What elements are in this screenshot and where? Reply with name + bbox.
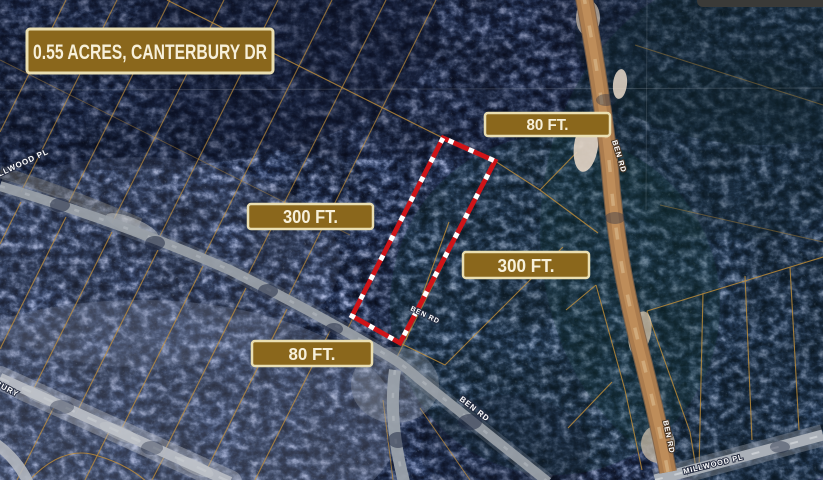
svg-text:0.55 ACRES, CANTERBURY DR: 0.55 ACRES, CANTERBURY DR [33,40,267,64]
svg-text:300 FT.: 300 FT. [283,206,338,227]
svg-text:80 FT.: 80 FT. [527,117,569,134]
svg-text:80 FT.: 80 FT. [289,344,336,364]
svg-text:300 FT.: 300 FT. [498,255,555,276]
